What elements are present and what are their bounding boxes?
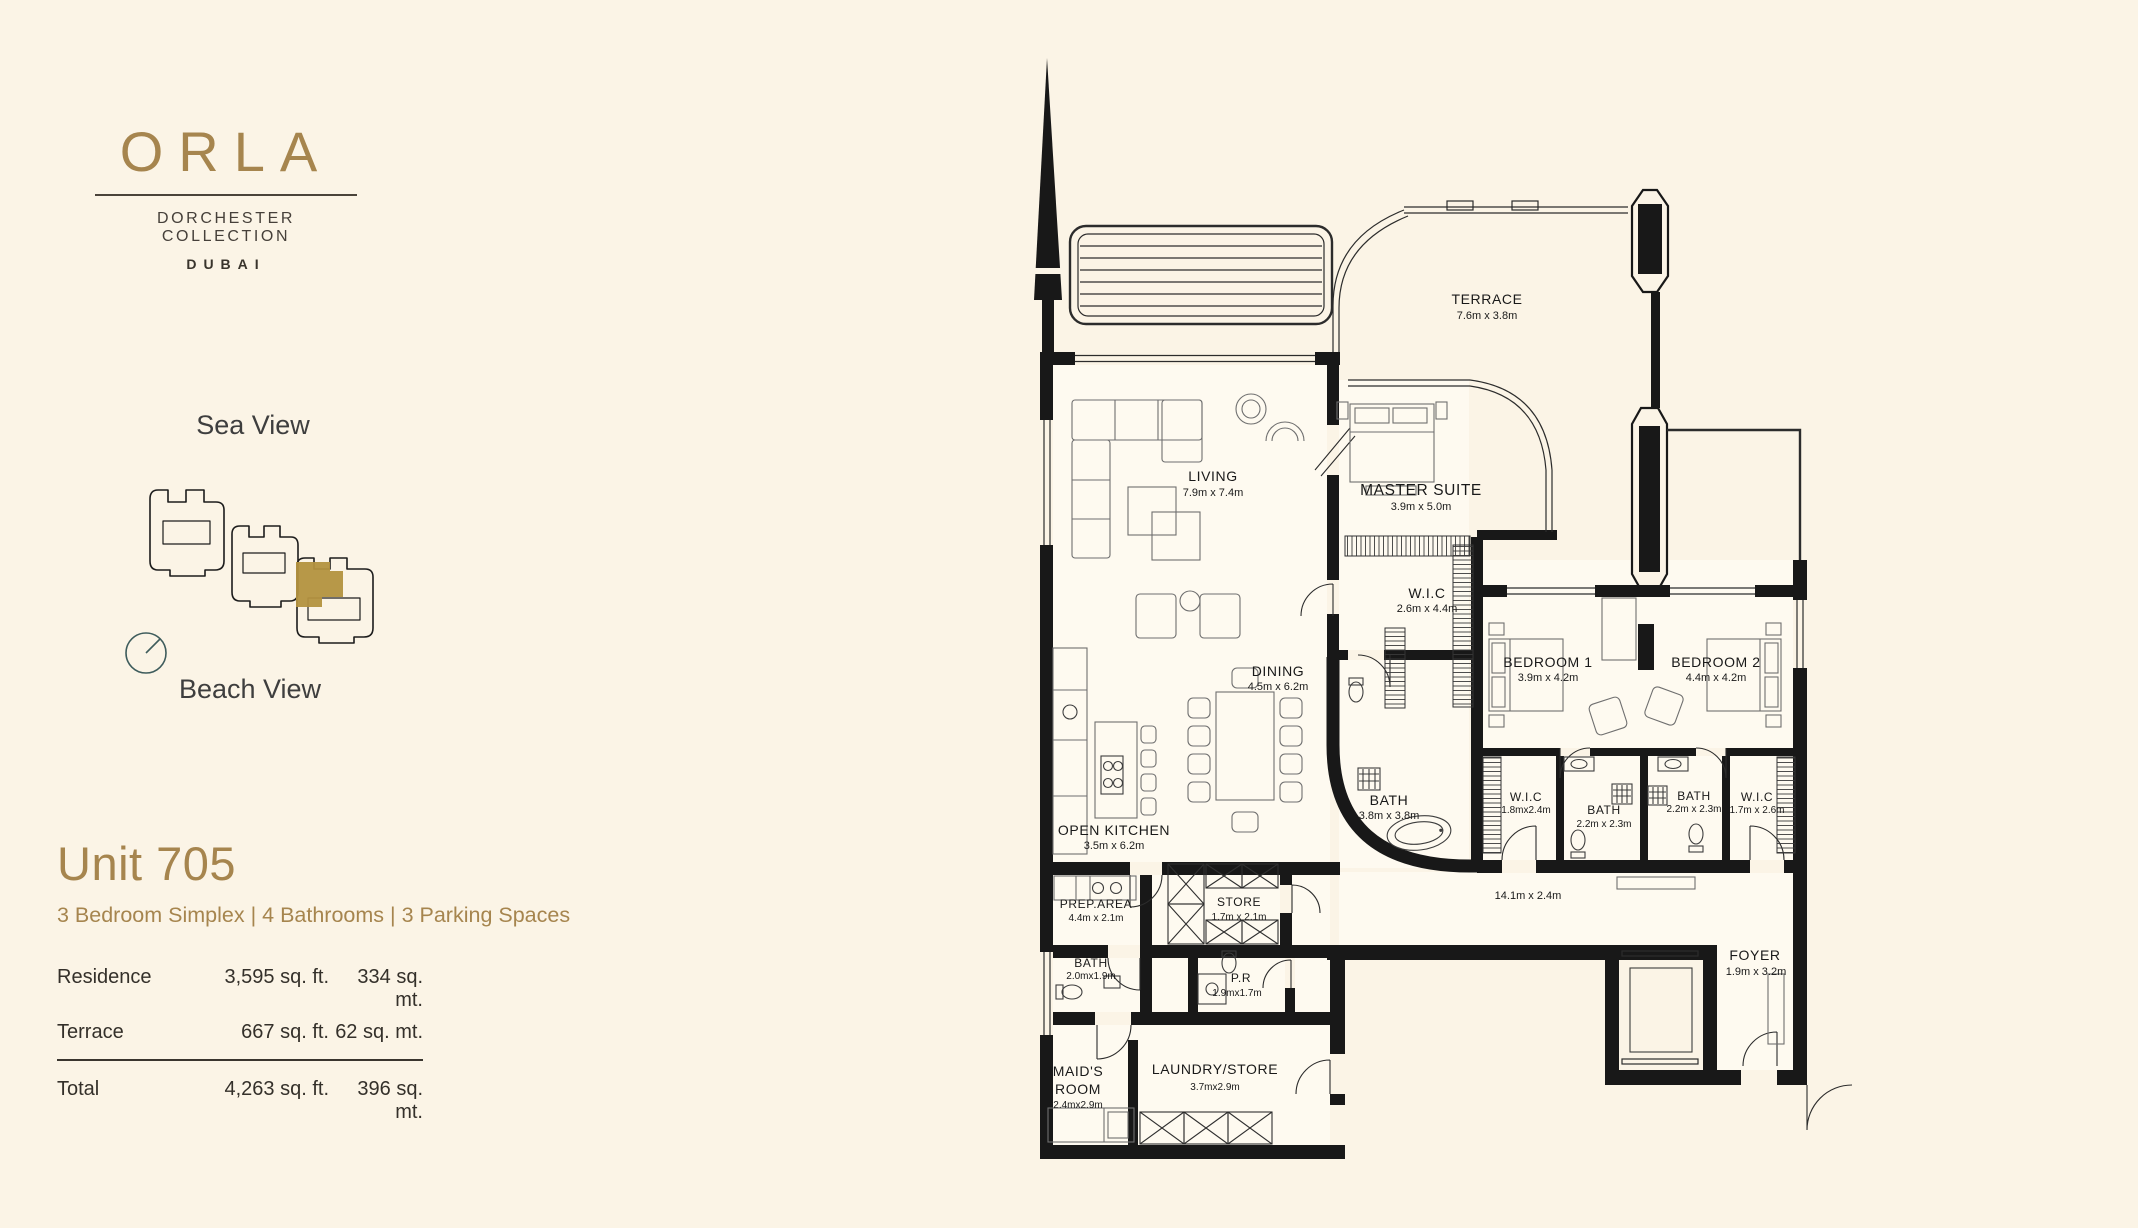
unit-summary: Unit 705 3 Bedroom Simplex | 4 Bathrooms… xyxy=(57,840,677,1133)
unit-location-highlight xyxy=(296,562,343,607)
terrace-railing xyxy=(1333,201,1628,352)
floor-plan-drawing: TERRACE 7.6m x 3.8m LIVING 7.9m x 7.4m M… xyxy=(1000,40,1880,1180)
room-label-maids-room: MAID'S ROOM 2.4mx2.9m xyxy=(1053,1063,1104,1111)
sea-view-label: Sea View xyxy=(150,410,356,441)
svg-text:BATH: BATH xyxy=(1587,803,1621,817)
svg-text:1.9mx1.7m: 1.9mx1.7m xyxy=(1212,988,1261,999)
svg-text:W.I.C: W.I.C xyxy=(1408,585,1445,601)
svg-text:LIVING: LIVING xyxy=(1188,468,1238,484)
brand-divider xyxy=(95,194,357,196)
brand-city: DUBAI xyxy=(95,256,357,272)
svg-text:3.9m x 4.2m: 3.9m x 4.2m xyxy=(1518,672,1579,684)
svg-text:BEDROOM 1: BEDROOM 1 xyxy=(1503,654,1592,670)
svg-text:1.9m x 3.2m: 1.9m x 3.2m xyxy=(1726,966,1787,978)
svg-text:PREP.AREA: PREP.AREA xyxy=(1060,897,1133,911)
svg-text:LAUNDRY/STORE: LAUNDRY/STORE xyxy=(1152,1061,1278,1077)
svg-text:W.I.C: W.I.C xyxy=(1741,790,1773,804)
svg-text:2.0mx1.9m: 2.0mx1.9m xyxy=(1066,971,1115,982)
svg-text:1.8mx2.4m: 1.8mx2.4m xyxy=(1501,805,1550,816)
area-label: Total xyxy=(57,1078,207,1124)
svg-text:1.7m x 2.6m: 1.7m x 2.6m xyxy=(1729,805,1784,816)
svg-text:TERRACE: TERRACE xyxy=(1451,291,1522,307)
svg-text:W.I.C: W.I.C xyxy=(1510,790,1542,804)
unit-subtitle: 3 Bedroom Simplex | 4 Bathrooms | 3 Park… xyxy=(57,903,677,928)
terrace-column-side xyxy=(1632,408,1667,590)
svg-text:BEDROOM 2: BEDROOM 2 xyxy=(1671,654,1760,670)
svg-text:7.6m x 3.8m: 7.6m x 3.8m xyxy=(1457,310,1518,322)
area-sqmt: 62 sq. mt. xyxy=(329,1021,423,1044)
compass-icon xyxy=(126,633,166,673)
beach-view-label: Beach View xyxy=(142,674,358,705)
svg-text:4.4m x 4.2m: 4.4m x 4.2m xyxy=(1686,672,1747,684)
area-total-divider xyxy=(57,1059,423,1061)
svg-text:MAID'S: MAID'S xyxy=(1053,1063,1104,1079)
svg-text:2.2m x 2.3m: 2.2m x 2.3m xyxy=(1666,804,1721,815)
svg-text:STORE: STORE xyxy=(1217,895,1261,909)
building-outlines xyxy=(150,490,373,643)
terrace-column-top xyxy=(1632,190,1668,292)
wing-upper-boundary xyxy=(1667,430,1800,562)
svg-text:3.7mx2.9m: 3.7mx2.9m xyxy=(1190,1082,1239,1093)
svg-text:4.4m x 2.1m: 4.4m x 2.1m xyxy=(1068,913,1123,924)
room-label-corridor: 14.1m x 2.4m xyxy=(1495,890,1562,902)
svg-text:OPEN KITCHEN: OPEN KITCHEN xyxy=(1058,822,1170,838)
area-sqft: 4,263 sq. ft. xyxy=(207,1078,329,1124)
area-row-residence: Residence 3,595 sq. ft. 334 sq. mt. xyxy=(57,966,423,1012)
area-sqmt: 396 sq. mt. xyxy=(329,1078,423,1124)
floorplan-brochure-page: ORLA DORCHESTER COLLECTION DUBAI Sea Vie… xyxy=(0,0,2138,1228)
svg-text:3.9m x 5.0m: 3.9m x 5.0m xyxy=(1391,501,1452,513)
spire xyxy=(1034,58,1062,300)
brand-wordmark: ORLA xyxy=(95,124,357,180)
brand-logo: ORLA DORCHESTER COLLECTION DUBAI xyxy=(95,124,357,272)
svg-text:7.9m x 7.4m: 7.9m x 7.4m xyxy=(1183,487,1244,499)
svg-text:14.1m x 2.4m: 14.1m x 2.4m xyxy=(1495,890,1562,902)
louvered-canopy xyxy=(1070,226,1332,324)
room-label-living: LIVING 7.9m x 7.4m xyxy=(1183,468,1244,499)
area-row-terrace: Terrace 667 sq. ft. 62 sq. mt. xyxy=(57,1021,423,1044)
svg-text:1.7m x 2.1m: 1.7m x 2.1m xyxy=(1211,912,1266,923)
elevator xyxy=(1622,951,1698,1064)
area-table: Residence 3,595 sq. ft. 334 sq. mt. Terr… xyxy=(57,966,423,1124)
room-label-prep-area: PREP.AREA 4.4m x 2.1m xyxy=(1060,897,1133,924)
room-label-dining: DINING 4.5m x 6.2m xyxy=(1248,663,1309,693)
svg-text:3.5m x 6.2m: 3.5m x 6.2m xyxy=(1084,840,1145,852)
svg-text:2.4mx2.9m: 2.4mx2.9m xyxy=(1053,1100,1102,1111)
area-sqmt: 334 sq. mt. xyxy=(329,966,423,1012)
room-label-terrace: TERRACE 7.6m x 3.8m xyxy=(1451,291,1522,322)
svg-text:ROOM: ROOM xyxy=(1055,1081,1101,1097)
svg-text:P.R: P.R xyxy=(1231,971,1251,985)
area-label: Terrace xyxy=(57,1021,207,1044)
site-location-map xyxy=(115,470,385,685)
svg-text:BATH: BATH xyxy=(1074,956,1108,970)
svg-text:BATH: BATH xyxy=(1370,792,1409,808)
svg-text:2.6m x 4.4m: 2.6m x 4.4m xyxy=(1397,603,1458,615)
area-sqft: 667 sq. ft. xyxy=(207,1021,329,1044)
svg-text:DINING: DINING xyxy=(1252,663,1305,679)
unit-title: Unit 705 xyxy=(57,840,677,887)
brand-collection: DORCHESTER COLLECTION xyxy=(95,210,357,246)
area-sqft: 3,595 sq. ft. xyxy=(207,966,329,1012)
svg-text:BATH: BATH xyxy=(1677,789,1711,803)
area-label: Residence xyxy=(57,966,207,1012)
svg-text:FOYER: FOYER xyxy=(1729,947,1780,963)
svg-text:2.2m x 2.3m: 2.2m x 2.3m xyxy=(1576,819,1631,830)
svg-text:3.8m x 3.8m: 3.8m x 3.8m xyxy=(1359,810,1420,822)
area-row-total: Total 4,263 sq. ft. 396 sq. mt. xyxy=(57,1078,423,1124)
svg-text:4.5m x 6.2m: 4.5m x 6.2m xyxy=(1248,681,1309,693)
svg-text:MASTER SUITE: MASTER SUITE xyxy=(1360,482,1482,499)
room-label-foyer: FOYER 1.9m x 3.2m xyxy=(1726,947,1787,978)
